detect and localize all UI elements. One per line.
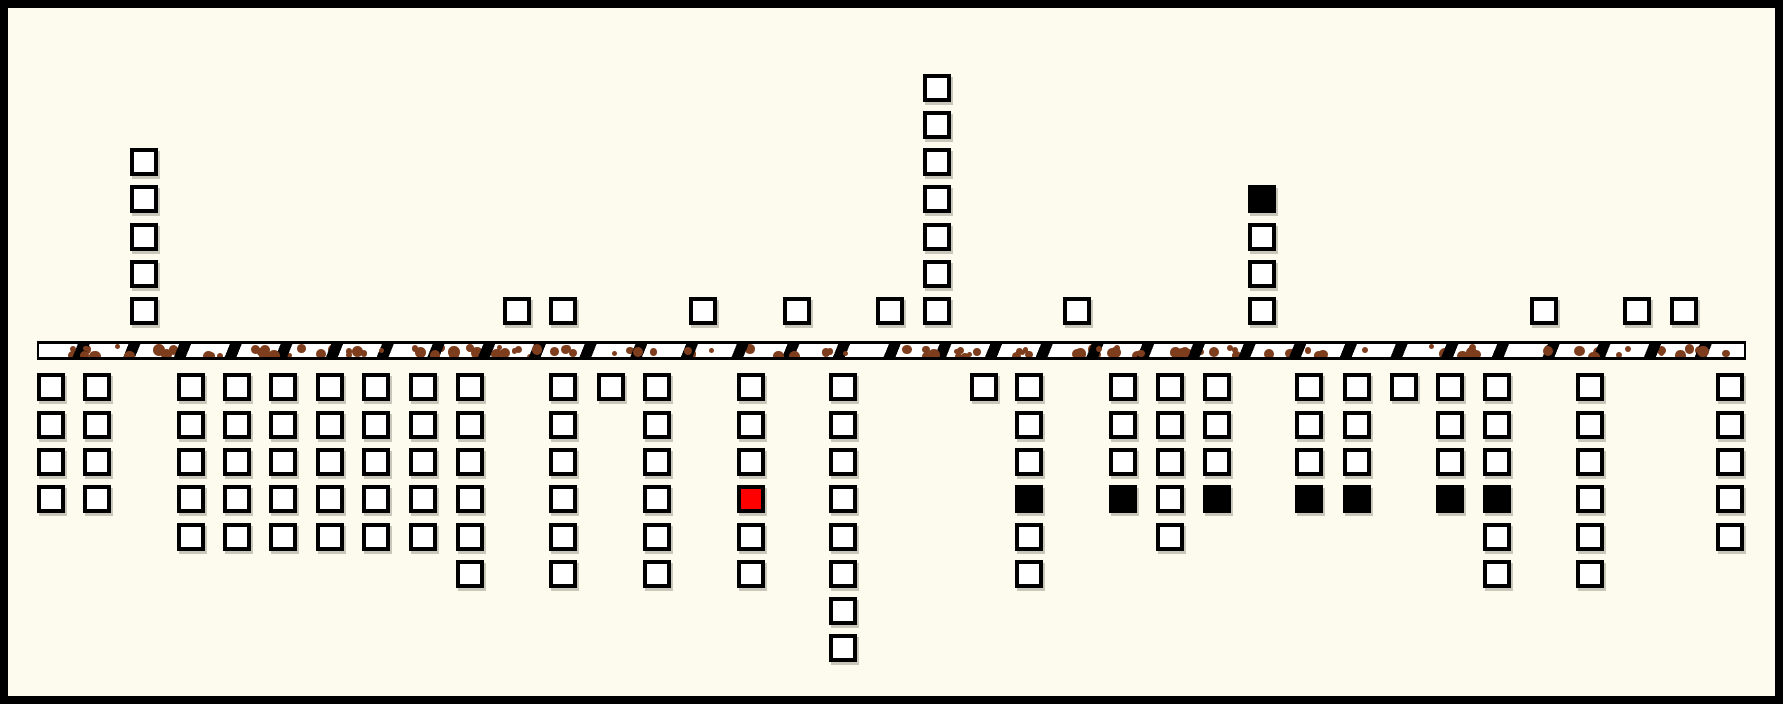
marker-square [1390,373,1418,401]
marker-square [130,148,158,176]
marker-square [923,185,951,213]
marker-square [177,485,205,513]
marker-square [177,448,205,476]
marker-square [269,485,297,513]
marker-square [1248,260,1276,288]
band-speckle-dot [1543,346,1553,356]
marker-square [689,297,717,325]
marker-square-black [1203,485,1231,513]
marker-square [1109,411,1137,439]
marker-square [829,634,857,662]
band-speckle-dot [259,350,269,360]
marker-square [409,373,437,401]
marker-square [1156,485,1184,513]
marker-square [549,297,577,325]
marker-square [456,448,484,476]
marker-square [456,523,484,551]
band-speckle-dot [1137,350,1144,357]
marker-square-black [1109,485,1137,513]
marker-square [223,448,251,476]
band-speckle-dot [1659,350,1665,356]
marker-square [737,560,765,588]
figure-canvas [8,8,1775,696]
band-speckle-dot [124,351,135,360]
marker-square [269,448,297,476]
marker-square [83,411,111,439]
marker-square [829,560,857,588]
marker-square [1483,560,1511,588]
band-speckle-dot [789,351,800,360]
marker-square [1015,523,1043,551]
marker-square [1623,297,1651,325]
marker-square [1203,448,1231,476]
marker-square [1015,448,1043,476]
band-speckle-dot [491,349,502,360]
marker-square [362,485,390,513]
marker-square [1716,523,1744,551]
band-speckle-dot [973,348,981,356]
marker-square [549,373,577,401]
band-speckle-dot [843,351,848,356]
marker-square [316,373,344,401]
marker-square [223,485,251,513]
marker-square [1203,411,1231,439]
marker-square [876,297,904,325]
marker-square [1109,373,1137,401]
marker-square [923,74,951,102]
marker-square [549,485,577,513]
marker-square [1109,448,1137,476]
marker-square-black [1248,185,1276,213]
marker-square [783,297,811,325]
marker-square [316,448,344,476]
band-speckle-dot [1020,350,1025,355]
marker-square [37,448,65,476]
marker-square [829,411,857,439]
marker-square [83,373,111,401]
marker-square [829,373,857,401]
band-speckle-dot [955,353,962,360]
band-speckle-dot [346,352,352,358]
marker-square [737,523,765,551]
marker-square [269,411,297,439]
marker-square [643,560,671,588]
marker-square [1576,485,1604,513]
marker-square [737,448,765,476]
marker-square [177,523,205,551]
band-speckle-dot [1170,347,1181,358]
marker-square-black [1436,485,1464,513]
marker-square [1576,411,1604,439]
band-speckle-dot [1616,352,1622,358]
marker-square [923,223,951,251]
band-speckle-dot [1590,352,1599,360]
band-speckle-dot [268,350,280,360]
marker-square [362,411,390,439]
band-hatch-pattern [39,344,1744,357]
marker-square [1716,373,1744,401]
marker-square [643,485,671,513]
marker-square-red [737,485,765,513]
band-speckle-dot [297,344,306,353]
marker-square [223,411,251,439]
figure-frame [0,0,1783,704]
marker-square [923,111,951,139]
marker-square [1576,373,1604,401]
band-speckle-dot [1697,346,1708,357]
marker-square [1015,560,1043,588]
marker-square [549,448,577,476]
marker-square [269,373,297,401]
marker-square [223,523,251,551]
marker-square [316,411,344,439]
marker-square [130,223,158,251]
marker-square [1203,373,1231,401]
marker-square [643,523,671,551]
marker-square [503,297,531,325]
band-speckle-dot [1685,344,1694,353]
band-speckle-dot [449,350,458,359]
marker-square [409,485,437,513]
band-speckle-dot [633,347,643,357]
marker-square [1530,297,1558,325]
band-speckle-dot [773,352,783,360]
marker-square [1295,411,1323,439]
marker-square [1670,297,1698,325]
marker-square [130,297,158,325]
marker-square [923,297,951,325]
marker-square [1248,297,1276,325]
band-speckle-dot [928,349,940,360]
marker-square [130,185,158,213]
marker-square [316,523,344,551]
marker-square [1015,411,1043,439]
marker-square [549,411,577,439]
marker-square [1015,373,1043,401]
band-speckle-dot [207,352,215,360]
marker-square [1063,297,1091,325]
marker-square-black [1483,485,1511,513]
band-speckle-dot [89,351,101,360]
band-speckle-dot [1457,351,1468,360]
marker-square [829,523,857,551]
marker-square [923,260,951,288]
marker-square [456,411,484,439]
marker-square [1716,485,1744,513]
marker-square [923,148,951,176]
marker-square [829,597,857,625]
band-speckle-dot [1072,349,1083,360]
marker-square [1436,373,1464,401]
marker-square [1343,448,1371,476]
band-speckle-dot [80,351,90,360]
marker-square [1295,448,1323,476]
marker-square [1343,373,1371,401]
marker-square [549,523,577,551]
marker-square [83,485,111,513]
marker-square [1156,448,1184,476]
marker-square [829,485,857,513]
marker-square [970,373,998,401]
marker-square-black [1295,485,1323,513]
marker-square [1716,448,1744,476]
marker-square [1343,411,1371,439]
marker-square-black [1015,485,1043,513]
marker-square [409,448,437,476]
marker-square [362,448,390,476]
band-speckle-dot [1305,347,1311,353]
marker-square [1436,448,1464,476]
band-speckle-dot [163,353,168,358]
marker-square [549,560,577,588]
marker-square [130,260,158,288]
marker-square [177,411,205,439]
marker-square [37,373,65,401]
marker-square [456,560,484,588]
marker-square [737,411,765,439]
band-speckle-dot [430,350,441,360]
marker-square [83,448,111,476]
marker-square [597,373,625,401]
marker-square [37,411,65,439]
band-speckle-dot [1110,347,1121,358]
band-speckle-dot [1722,350,1729,357]
marker-square [1248,223,1276,251]
marker-square [1483,411,1511,439]
marker-square [177,373,205,401]
marker-square [1576,523,1604,551]
marker-square-black [1343,485,1371,513]
band-speckle-dot [379,348,384,353]
marker-square [1156,523,1184,551]
speckled-band [37,341,1746,360]
marker-square [456,373,484,401]
marker-square [1483,373,1511,401]
marker-square [223,373,251,401]
band-speckle-dot [352,346,363,357]
marker-square [1295,373,1323,401]
band-speckle-dot [1675,350,1685,360]
marker-square [1156,411,1184,439]
marker-square [362,523,390,551]
marker-square [37,485,65,513]
marker-square [1716,411,1744,439]
marker-square [737,373,765,401]
marker-square [643,411,671,439]
marker-square [409,411,437,439]
marker-square [1576,560,1604,588]
marker-square [829,448,857,476]
marker-square [643,448,671,476]
marker-square [1576,448,1604,476]
marker-square [1156,373,1184,401]
marker-square [1436,411,1464,439]
marker-square [643,373,671,401]
marker-square [1483,448,1511,476]
marker-square [362,373,390,401]
band-speckle-dot [1574,346,1584,356]
marker-square [409,523,437,551]
marker-square [456,485,484,513]
marker-square [269,523,297,551]
marker-square [316,485,344,513]
marker-square [1483,523,1511,551]
